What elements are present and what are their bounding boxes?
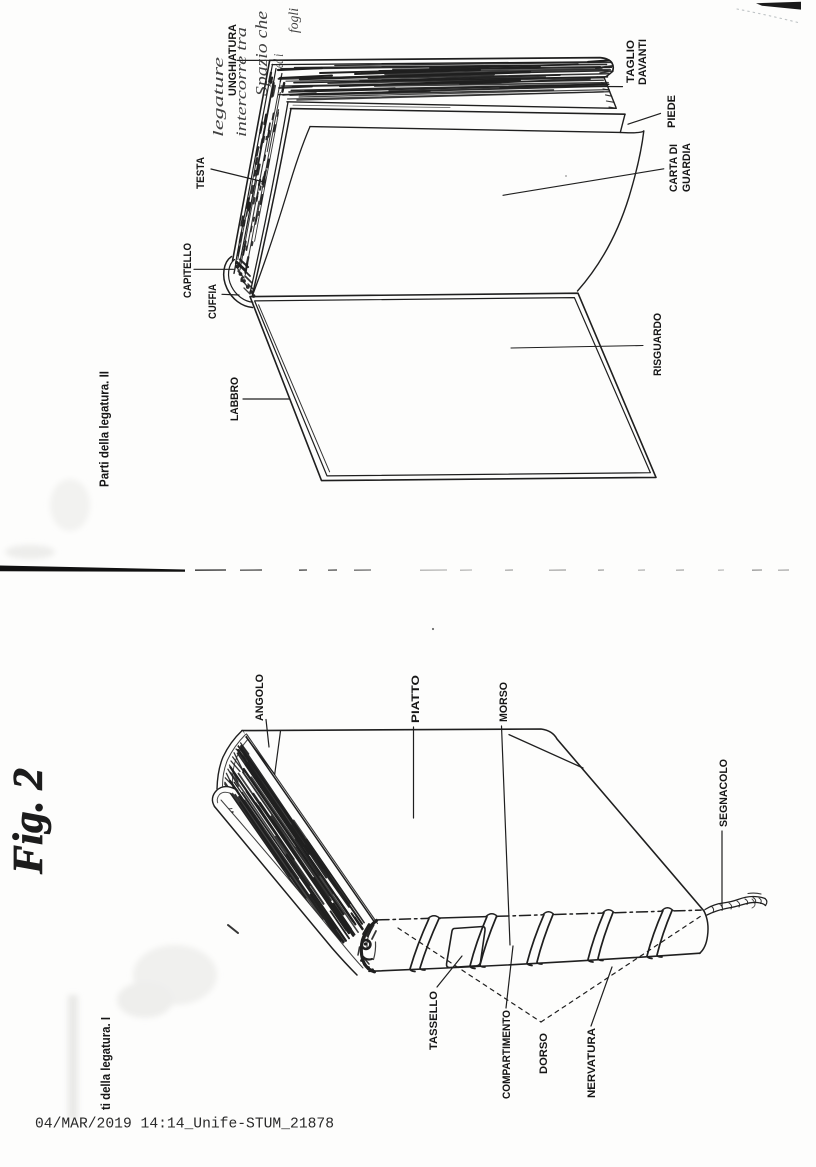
svg-text:CAPITELLO: CAPITELLO [182, 243, 194, 298]
svg-text:NERVATURA: NERVATURA [586, 1028, 598, 1098]
svg-text:Parti della legatura. II: Parti della legatura. II [98, 371, 112, 487]
svg-text:GUARDIA: GUARDIA [681, 143, 693, 192]
svg-text:TESTA: TESTA [195, 157, 207, 189]
svg-text:COMPARTIMENTO: COMPARTIMENTO [501, 1010, 513, 1099]
svg-text:LABBRO: LABBRO [229, 377, 241, 421]
svg-text:ANGOLO: ANGOLO [254, 674, 266, 721]
svg-text:CUFFIA: CUFFIA [207, 284, 219, 319]
svg-text:DAVANTI: DAVANTI [637, 39, 649, 85]
svg-text:Fig. 2: Fig. 2 [6, 768, 52, 875]
svg-text:04/MAR/2019 14:14_Unife-STUM_2: 04/MAR/2019 14:14_Unife-STUM_21878 [35, 1117, 334, 1133]
svg-text:legature: legature [211, 56, 227, 137]
svg-text:TASSELLO: TASSELLO [428, 991, 440, 1050]
svg-text:ed i: ed i [271, 54, 286, 68]
svg-text:CARTA DI: CARTA DI [668, 144, 680, 192]
svg-text:MORSO: MORSO [498, 682, 510, 722]
svg-text:fogli: fogli [286, 8, 301, 33]
svg-text:RISGUARDO: RISGUARDO [652, 313, 664, 376]
svg-text:SEGNACOLO: SEGNACOLO [718, 759, 730, 827]
svg-text:PIATTO: PIATTO [410, 674, 422, 723]
svg-text:ti della legatura. I: ti della legatura. I [99, 1017, 113, 1110]
svg-text:Spazio che: Spazio che [252, 11, 271, 96]
svg-text:DORSO: DORSO [538, 1033, 550, 1074]
svg-text:TAGLIO: TAGLIO [625, 40, 637, 83]
svg-text:intercorre tra: intercorre tra [234, 27, 250, 137]
svg-text:PIEDE: PIEDE [666, 95, 678, 128]
